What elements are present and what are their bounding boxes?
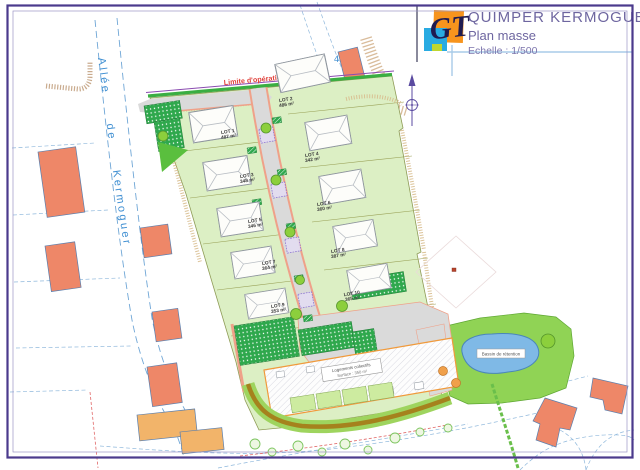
plan-masse-sheet: Allée de Kermoguer 452	[0, 0, 640, 470]
scale-label: Echelle : 1/500	[468, 45, 538, 57]
logo-text: GT	[428, 9, 473, 46]
pond-label: Bassin de rétention	[477, 349, 525, 358]
drawing-title: Plan masse	[468, 28, 536, 43]
project-title: QUIMPER KERMOGUER	[468, 9, 640, 26]
site-plan-canvas: Allée de Kermoguer 452	[0, 0, 640, 470]
svg-text:Bassin de rétention: Bassin de rétention	[482, 352, 521, 357]
survey-marker	[452, 268, 456, 272]
